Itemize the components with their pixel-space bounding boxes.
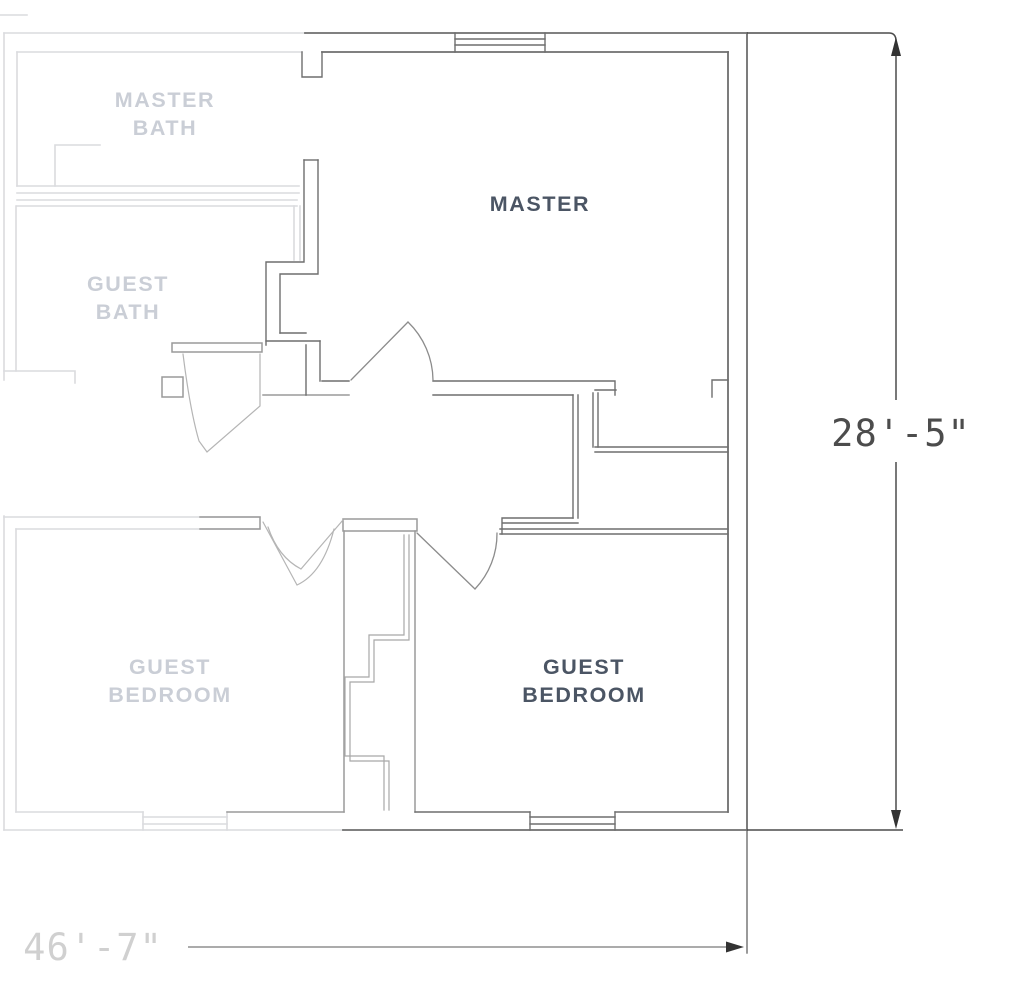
label-guest-bath-line1: GUEST — [87, 272, 169, 296]
window-bottom-right — [530, 812, 615, 830]
label-master-bath-line2: BATH — [133, 116, 198, 140]
floor-plan-page: MASTER BATH GUEST BATH MASTER GUEST BEDR… — [0, 0, 1024, 984]
label-guest-bedroom-left-line2: BEDROOM — [108, 683, 231, 707]
arrow-up-icon — [891, 37, 901, 56]
arrow-down-icon — [891, 810, 901, 829]
dimension-width-text: 46'-7" — [23, 926, 163, 969]
label-guest-bath-line2: BATH — [96, 300, 161, 324]
floor-plan-canvas: MASTER BATH GUEST BATH MASTER GUEST BEDR… — [0, 0, 1024, 984]
label-guest-bedroom-right-line2: BEDROOM — [522, 683, 645, 707]
walls-dark — [266, 33, 747, 953]
window-top — [455, 33, 545, 52]
guest-bedroom-left-doors — [263, 520, 343, 585]
guest-bath-door — [183, 354, 260, 452]
label-guest-bedroom-right-line1: GUEST — [543, 655, 625, 679]
label-master: MASTER — [490, 192, 590, 216]
master-door — [351, 322, 433, 380]
arrow-right-icon — [726, 942, 744, 953]
dimension-height-text: 28'-5" — [831, 412, 971, 455]
label-master-bath-line1: MASTER — [115, 88, 215, 112]
guest-bedroom-right-door — [417, 533, 497, 589]
walls-center — [162, 343, 417, 812]
dimension-width — [188, 942, 744, 953]
window-bottom-left — [143, 812, 227, 830]
label-guest-bedroom-left-line1: GUEST — [129, 655, 211, 679]
